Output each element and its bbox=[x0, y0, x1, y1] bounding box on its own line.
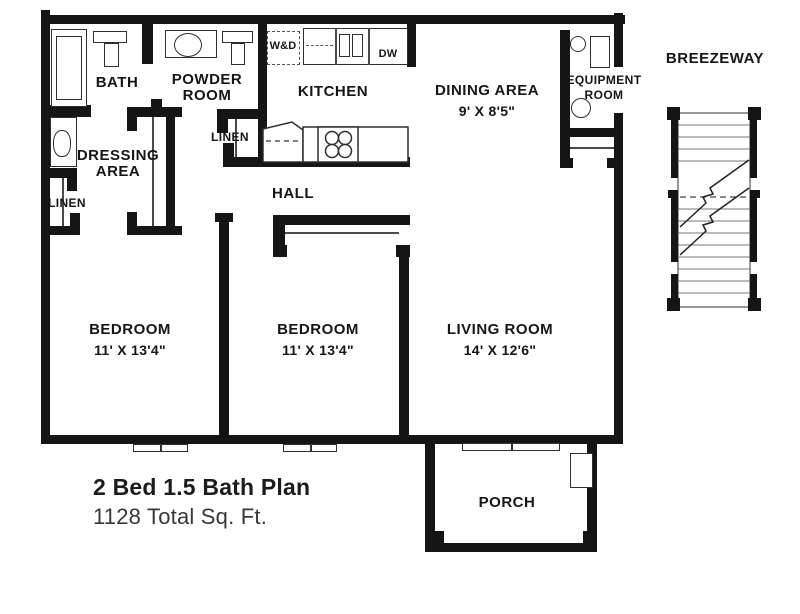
floor-plan: W&D DW bbox=[0, 0, 800, 614]
room-dims: 14' X 12'6" bbox=[447, 341, 553, 359]
porch-post bbox=[583, 531, 595, 543]
room-label-equipment: EQUIPMENT ROOM bbox=[567, 73, 642, 103]
room-label-line: ROOM bbox=[183, 87, 232, 104]
dishwasher-label: DW bbox=[377, 46, 400, 62]
wall-bedroom-divider bbox=[219, 222, 229, 436]
room-label-line: LIVING ROOM bbox=[447, 321, 553, 338]
wall-stub bbox=[127, 117, 137, 131]
plan-title: 2 Bed 1.5 Bath Plan bbox=[93, 474, 310, 501]
room-dims: 11' X 13'4" bbox=[89, 341, 171, 359]
wall-cap bbox=[215, 213, 233, 222]
kitchen-counter-bottom bbox=[262, 120, 410, 164]
room-label-powder: POWDER ROOM bbox=[172, 72, 243, 104]
wall-kitchen-dining bbox=[407, 24, 416, 67]
wall-stub bbox=[562, 158, 573, 168]
counter-division bbox=[335, 28, 337, 65]
window-bedroom1 bbox=[133, 444, 188, 452]
plan-subtitle: 1128 Total Sq. Ft. bbox=[93, 504, 267, 530]
wall-equipment-bottom bbox=[560, 128, 617, 137]
closet-rod-line bbox=[285, 232, 399, 234]
bathtub-inner bbox=[56, 36, 82, 100]
burner-icon bbox=[339, 145, 352, 158]
room-label-line: POWDER bbox=[172, 71, 243, 88]
wall-powder-bottom bbox=[217, 109, 260, 119]
room-label-bedroom1: BEDROOM 11' X 13'4" bbox=[89, 321, 171, 359]
window-mullion bbox=[160, 445, 162, 451]
sink-bowl bbox=[352, 34, 363, 57]
wall-stub bbox=[70, 213, 80, 226]
room-label-bedroom2: BEDROOM 11' X 13'4" bbox=[277, 321, 359, 359]
room-label-linen-mid: LINEN bbox=[211, 129, 249, 145]
burner-icon bbox=[326, 132, 339, 145]
wall-dressing-closet-right bbox=[166, 107, 175, 235]
wall-linen-bottom bbox=[41, 226, 80, 235]
room-label-living: LIVING ROOM 14' X 12'6" bbox=[447, 321, 553, 359]
window-mullion bbox=[310, 445, 312, 451]
room-label-linen-left: LINEN bbox=[48, 195, 86, 211]
washer-dryer-label: W&D bbox=[270, 38, 297, 54]
toilet-bowl bbox=[104, 43, 119, 67]
room-label-line: DRESSING bbox=[77, 147, 159, 164]
wall-stub bbox=[273, 245, 287, 257]
room-label-hall: HALL bbox=[272, 186, 314, 202]
wall-bed2-closet-top bbox=[273, 215, 410, 225]
wall-dressing-closet-bottom bbox=[127, 226, 182, 235]
room-label-line: DINING AREA bbox=[435, 82, 539, 99]
burner-icon bbox=[326, 145, 339, 158]
window-bedroom2 bbox=[283, 444, 337, 452]
entry-closet-line bbox=[570, 147, 614, 149]
room-label-line: BEDROOM bbox=[277, 321, 359, 338]
wall-top bbox=[41, 15, 625, 24]
porch-post bbox=[432, 531, 444, 543]
room-label-dressing: DRESSING AREA bbox=[77, 148, 159, 180]
wall-stub bbox=[223, 143, 234, 157]
room-label-kitchen: KITCHEN bbox=[298, 84, 368, 100]
room-label-bath: BATH bbox=[96, 75, 139, 91]
window-mullion bbox=[511, 444, 513, 450]
room-label-line: EQUIPMENT bbox=[567, 73, 642, 87]
wall-bed2-living bbox=[399, 245, 409, 436]
toilet-tank bbox=[222, 31, 253, 43]
toilet-bowl bbox=[231, 43, 245, 65]
room-label-porch: PORCH bbox=[479, 495, 536, 511]
room-dims: 9' X 8'5" bbox=[435, 102, 539, 120]
wall-bath-powder bbox=[142, 24, 153, 64]
wall-porch-bottom bbox=[425, 543, 597, 552]
counter-division bbox=[368, 28, 370, 65]
room-label-breezeway: BREEZEWAY bbox=[666, 51, 764, 67]
wall-right-upper bbox=[614, 13, 623, 67]
counter-dash bbox=[306, 45, 333, 46]
wall-stub bbox=[67, 178, 77, 191]
room-label-line: BEDROOM bbox=[89, 321, 171, 338]
burner-icon bbox=[339, 132, 352, 145]
toilet-tank bbox=[93, 31, 127, 43]
water-heater bbox=[570, 36, 586, 52]
sink-basin bbox=[174, 33, 202, 57]
wall-linen-top bbox=[41, 168, 77, 178]
room-dims: 11' X 13'4" bbox=[277, 341, 359, 359]
window-living bbox=[462, 443, 560, 451]
sink-bowl bbox=[339, 34, 350, 57]
breezeway-stairs bbox=[664, 103, 764, 315]
wall-stub bbox=[607, 158, 618, 168]
room-label-line: AREA bbox=[96, 163, 141, 180]
room-label-dining: DINING AREA 9' X 8'5" bbox=[435, 82, 539, 120]
wall-stub bbox=[127, 212, 137, 226]
hvac-unit bbox=[590, 36, 610, 68]
sink-basin bbox=[53, 130, 71, 157]
wall-stub bbox=[151, 99, 162, 108]
porch-storage bbox=[570, 453, 593, 488]
room-label-line: ROOM bbox=[585, 88, 624, 102]
